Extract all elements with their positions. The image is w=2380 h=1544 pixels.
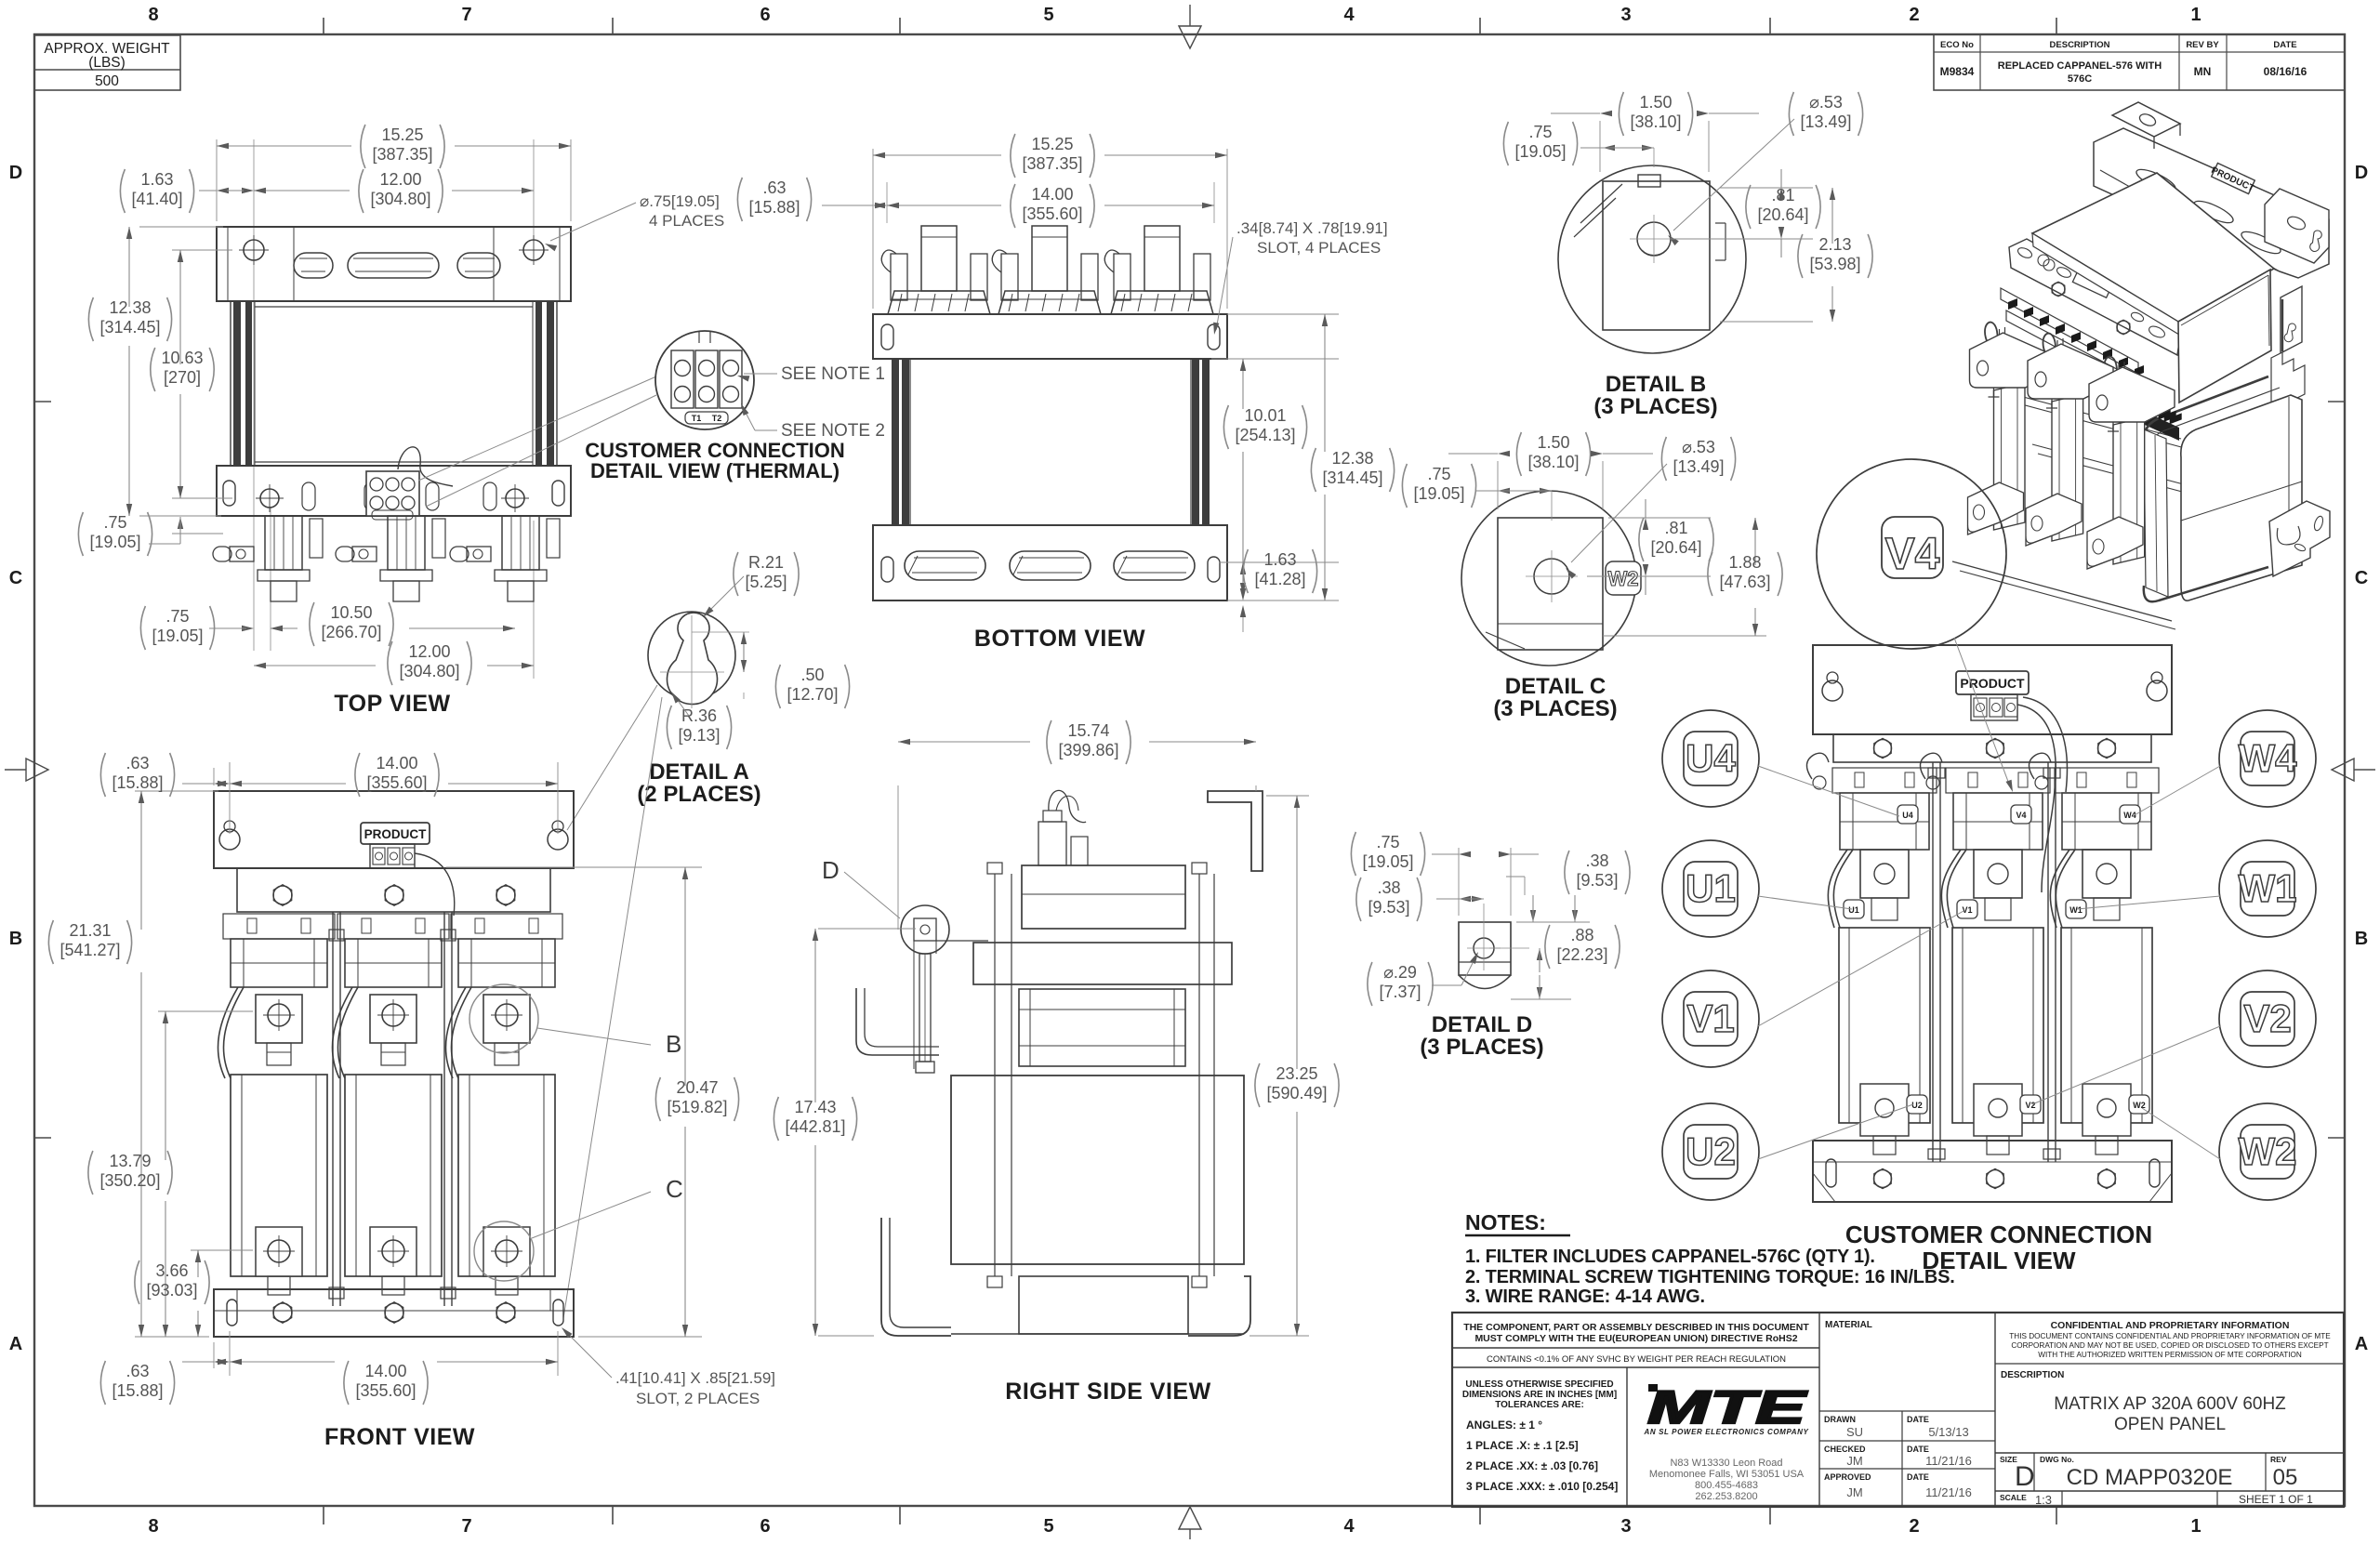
svg-text:V4: V4 xyxy=(1885,530,1940,579)
svg-text:DATE: DATE xyxy=(1907,1415,1929,1424)
svg-text:[19.05]: [19.05] xyxy=(89,533,140,551)
svg-text:[355.60]: [355.60] xyxy=(366,773,427,792)
svg-text:JM: JM xyxy=(1846,1485,1862,1499)
svg-text:[9.53]: [9.53] xyxy=(1576,871,1618,890)
svg-text:14.00: 14.00 xyxy=(376,754,417,772)
svg-text:7: 7 xyxy=(461,5,471,25)
svg-text:5: 5 xyxy=(1043,5,1053,25)
svg-text:[590.49]: [590.49] xyxy=(1266,1084,1327,1102)
svg-text:.81: .81 xyxy=(1771,186,1794,205)
svg-text:REPLACED CAPPANEL-576 WITH: REPLACED CAPPANEL-576 WITH xyxy=(1998,60,2162,72)
svg-text:.75: .75 xyxy=(1376,833,1399,851)
svg-text:V2: V2 xyxy=(2243,996,2291,1040)
svg-text:7: 7 xyxy=(461,1516,471,1537)
svg-text:D: D xyxy=(2015,1461,2035,1492)
svg-text:500: 500 xyxy=(95,73,119,89)
svg-text:⌀.53: ⌀.53 xyxy=(1809,93,1843,112)
svg-text:2 PLACE .XX: ± .03 [0.76]: 2 PLACE .XX: ± .03 [0.76] xyxy=(1466,1459,1598,1472)
svg-text:[387.35]: [387.35] xyxy=(372,145,432,164)
svg-text:8: 8 xyxy=(148,1516,158,1537)
svg-text:05: 05 xyxy=(2273,1465,2298,1490)
svg-text:[314.45]: [314.45] xyxy=(1322,468,1382,487)
svg-text:DESCRIPTION: DESCRIPTION xyxy=(2001,1370,2064,1380)
svg-text:SEE NOTE 2: SEE NOTE 2 xyxy=(781,421,885,441)
svg-text:W2: W2 xyxy=(1608,567,1639,590)
svg-text:⌀.53: ⌀.53 xyxy=(1682,438,1715,456)
svg-text:A: A xyxy=(9,1334,22,1354)
svg-text:CONTAINS <0.1% OF ANY SVHC BY: CONTAINS <0.1% OF ANY SVHC BY WEIGHT PER… xyxy=(1487,1354,1786,1365)
svg-text:D: D xyxy=(2355,163,2368,183)
svg-text:DESCRIPTION: DESCRIPTION xyxy=(2050,40,2110,50)
svg-text:5/13/13: 5/13/13 xyxy=(1928,1425,1968,1439)
svg-text:[15.88]: [15.88] xyxy=(112,1381,163,1400)
svg-text:[355.60]: [355.60] xyxy=(355,1381,416,1400)
svg-text:6: 6 xyxy=(760,5,770,25)
svg-text:V2: V2 xyxy=(2025,1101,2035,1110)
svg-text:T2: T2 xyxy=(712,414,722,423)
svg-text:W2: W2 xyxy=(2133,1101,2146,1110)
svg-text:REV: REV xyxy=(2270,1455,2287,1464)
svg-text:DETAIL D: DETAIL D xyxy=(1432,1012,1532,1037)
svg-text:11/21/16: 11/21/16 xyxy=(1925,1454,1972,1468)
svg-text:BOTTOM VIEW: BOTTOM VIEW xyxy=(974,626,1145,652)
svg-text:CHECKED: CHECKED xyxy=(1824,1445,1866,1454)
svg-text:U4: U4 xyxy=(1686,736,1736,780)
svg-text:[399.86]: [399.86] xyxy=(1058,741,1118,759)
svg-text:T1: T1 xyxy=(692,414,702,423)
svg-text:11/21/16: 11/21/16 xyxy=(1925,1485,1972,1499)
svg-text:⌀.75[19.05]: ⌀.75[19.05] xyxy=(640,192,720,210)
svg-text:D: D xyxy=(9,163,22,183)
svg-text:M9834: M9834 xyxy=(1940,65,1975,78)
svg-text:[22.23]: [22.23] xyxy=(1556,945,1607,964)
svg-text:.63: .63 xyxy=(126,1362,149,1380)
svg-text:V4: V4 xyxy=(2016,811,2026,820)
svg-text:CD MAPP0320E: CD MAPP0320E xyxy=(2067,1465,2233,1490)
svg-text:12.38: 12.38 xyxy=(109,298,151,317)
svg-text:N83 W13330 Leon Road: N83 W13330 Leon Road xyxy=(1670,1458,1782,1469)
svg-text:DETAIL C: DETAIL C xyxy=(1505,674,1606,699)
svg-text:15.74: 15.74 xyxy=(1067,721,1109,740)
svg-text:MUST COMPLY WITH THE EU(EUROPE: MUST COMPLY WITH THE EU(EUROPEAN UNION) … xyxy=(1474,1333,1797,1344)
svg-text:[38.10]: [38.10] xyxy=(1527,453,1579,471)
svg-text:V1: V1 xyxy=(1962,905,1972,915)
svg-text:[7.37]: [7.37] xyxy=(1379,983,1421,1001)
svg-text:MN: MN xyxy=(2194,65,2212,78)
svg-text:JM: JM xyxy=(1846,1454,1862,1468)
svg-text:15.25: 15.25 xyxy=(1031,135,1073,153)
svg-text:DATE: DATE xyxy=(1907,1445,1929,1454)
svg-text:23.25: 23.25 xyxy=(1276,1064,1317,1083)
svg-text:[15.88]: [15.88] xyxy=(748,198,800,217)
svg-text:[350.20]: [350.20] xyxy=(99,1171,160,1190)
svg-text:ECO No: ECO No xyxy=(1940,40,1974,50)
svg-text:1:3: 1:3 xyxy=(2035,1493,2052,1507)
svg-text:[15.88]: [15.88] xyxy=(112,773,163,792)
svg-text:800.455-4683: 800.455-4683 xyxy=(1695,1480,1758,1491)
svg-text:U2: U2 xyxy=(1911,1101,1923,1110)
svg-text:V1: V1 xyxy=(1686,996,1734,1040)
svg-text:C: C xyxy=(2355,568,2368,588)
svg-text:[270]: [270] xyxy=(164,368,201,387)
svg-text:C: C xyxy=(666,1175,683,1203)
svg-text:[41.40]: [41.40] xyxy=(131,190,182,208)
svg-text:NOTES:: NOTES: xyxy=(1465,1210,1546,1234)
svg-text:1 PLACE .X: ± .1 [2.5]: 1 PLACE .X: ± .1 [2.5] xyxy=(1466,1439,1579,1452)
svg-text:.81: .81 xyxy=(1664,519,1687,537)
svg-text:⌀.29: ⌀.29 xyxy=(1383,963,1417,982)
svg-text:(2 PLACES): (2 PLACES) xyxy=(637,782,760,807)
svg-text:MTE: MTE xyxy=(1647,1381,1808,1433)
svg-text:D: D xyxy=(822,856,840,884)
svg-text:DETAIL VIEW (THERMAL): DETAIL VIEW (THERMAL) xyxy=(590,459,840,482)
svg-text:.41[10.41] X .85[21.59]: .41[10.41] X .85[21.59] xyxy=(615,1369,775,1387)
svg-text:[13.49]: [13.49] xyxy=(1800,112,1851,131)
svg-text:SLOT, 2 PLACES: SLOT, 2 PLACES xyxy=(636,1390,760,1407)
svg-text:3. WIRE RANGE: 4-14 AWG.: 3. WIRE RANGE: 4-14 AWG. xyxy=(1465,1287,1705,1307)
svg-text:(LBS): (LBS) xyxy=(88,55,126,71)
svg-text:DWG No.: DWG No. xyxy=(2040,1455,2074,1464)
svg-text:[19.05]: [19.05] xyxy=(1413,484,1464,503)
svg-text:THE COMPONENT, PART OR ASSEMBL: THE COMPONENT, PART OR ASSEMBLY DESCRIBE… xyxy=(1463,1322,1809,1333)
svg-text:10.50: 10.50 xyxy=(330,603,372,622)
svg-text:[41.28]: [41.28] xyxy=(1254,570,1305,588)
svg-text:6: 6 xyxy=(760,1516,770,1537)
svg-text:SEE NOTE 1: SEE NOTE 1 xyxy=(781,364,885,384)
svg-text:B: B xyxy=(9,929,22,949)
svg-text:[19.05]: [19.05] xyxy=(1514,142,1566,161)
svg-text:[519.82]: [519.82] xyxy=(667,1098,727,1116)
svg-text:1.88: 1.88 xyxy=(1728,553,1761,572)
svg-text:W1: W1 xyxy=(2239,866,2297,910)
svg-text:[20.64]: [20.64] xyxy=(1757,205,1808,224)
svg-text:[93.03]: [93.03] xyxy=(146,1281,197,1300)
svg-text:W1: W1 xyxy=(2069,905,2082,915)
svg-text:.63: .63 xyxy=(762,178,786,197)
svg-text:.34[8.74] X .78[19.91]: .34[8.74] X .78[19.91] xyxy=(1236,219,1388,237)
svg-text:5: 5 xyxy=(1043,1516,1053,1537)
svg-text:12.38: 12.38 xyxy=(1331,449,1373,468)
svg-text:PRODUCT: PRODUCT xyxy=(1960,676,2025,691)
svg-text:1: 1 xyxy=(2190,5,2201,25)
svg-text:SHEET 1 OF 1: SHEET 1 OF 1 xyxy=(2239,1493,2313,1506)
svg-text:[5.25]: [5.25] xyxy=(745,573,787,591)
svg-text:[266.70]: [266.70] xyxy=(321,623,381,641)
svg-text:.38: .38 xyxy=(1377,878,1400,897)
svg-text:[304.80]: [304.80] xyxy=(399,662,459,680)
svg-text:.88: .88 xyxy=(1570,926,1593,944)
svg-text:[47.63]: [47.63] xyxy=(1719,573,1770,591)
svg-text:DRAWN: DRAWN xyxy=(1824,1415,1856,1424)
svg-text:3: 3 xyxy=(1620,1516,1631,1537)
svg-text:12.00: 12.00 xyxy=(379,170,421,189)
svg-text:10.01: 10.01 xyxy=(1244,406,1286,425)
svg-text:21.31: 21.31 xyxy=(69,921,111,940)
svg-text:SLOT, 4 PLACES: SLOT, 4 PLACES xyxy=(1257,239,1381,257)
svg-text:2. TERMINAL SCREW TIGHTENING: 2. TERMINAL SCREW TIGHTENING TORQUE: 16 … xyxy=(1465,1267,1955,1287)
svg-text:3 PLACE .XXX: ± .010 [0.254]: 3 PLACE .XXX: ± .010 [0.254] xyxy=(1466,1480,1618,1493)
svg-text:14.00: 14.00 xyxy=(364,1362,406,1380)
svg-text:W4: W4 xyxy=(2239,736,2298,780)
svg-text:[9.53]: [9.53] xyxy=(1368,898,1409,917)
svg-text:17.43: 17.43 xyxy=(794,1098,836,1116)
svg-text:2: 2 xyxy=(1909,1516,1919,1537)
svg-text:CUSTOMER CONNECTION: CUSTOMER CONNECTION xyxy=(1845,1221,2152,1248)
svg-text:.75: .75 xyxy=(1427,465,1450,483)
svg-text:B: B xyxy=(666,1030,681,1058)
svg-text:1. FILTER INCLUDES CAPPANEL-5: 1. FILTER INCLUDES CAPPANEL-576C (QTY 1)… xyxy=(1465,1247,1875,1267)
svg-text:12.00: 12.00 xyxy=(408,642,450,661)
svg-text:DIMENSIONS ARE IN INCHES [MM]: DIMENSIONS ARE IN INCHES [MM] xyxy=(1462,1390,1617,1400)
svg-text:2.13: 2.13 xyxy=(1818,235,1851,254)
svg-text:[304.80]: [304.80] xyxy=(370,190,430,208)
svg-text:08/16/16: 08/16/16 xyxy=(2264,65,2307,78)
svg-text:3.66: 3.66 xyxy=(155,1261,188,1280)
svg-text:14.00: 14.00 xyxy=(1031,185,1073,204)
svg-text:R.36: R.36 xyxy=(681,706,717,725)
svg-text:[442.81]: [442.81] xyxy=(785,1117,845,1136)
svg-text:[355.60]: [355.60] xyxy=(1022,205,1082,223)
svg-text:[387.35]: [387.35] xyxy=(1022,154,1082,173)
svg-text:1.50: 1.50 xyxy=(1639,93,1672,112)
svg-text:3: 3 xyxy=(1620,5,1631,25)
svg-text:A: A xyxy=(2355,1334,2368,1354)
svg-text:[19.05]: [19.05] xyxy=(1362,852,1413,871)
svg-text:OPEN PANEL: OPEN PANEL xyxy=(2114,1415,2226,1434)
svg-text:SU: SU xyxy=(1846,1425,1863,1439)
svg-text:[38.10]: [38.10] xyxy=(1630,112,1681,131)
svg-text:SCALE: SCALE xyxy=(2000,1493,2027,1502)
svg-text:(3 PLACES): (3 PLACES) xyxy=(1593,394,1717,419)
svg-text:W2: W2 xyxy=(2239,1129,2297,1173)
svg-text:DETAIL A: DETAIL A xyxy=(649,759,749,785)
svg-text:PRODUCT: PRODUCT xyxy=(364,827,428,841)
svg-text:AN SL POWER ELECTRONICS COMPAN: AN SL POWER ELECTRONICS COMPANY xyxy=(1644,1428,1809,1436)
svg-text:APPROVED: APPROVED xyxy=(1824,1472,1871,1482)
svg-text:C: C xyxy=(9,568,22,588)
svg-text:.50: .50 xyxy=(800,666,824,684)
svg-text:U2: U2 xyxy=(1686,1129,1736,1173)
svg-text:[19.05]: [19.05] xyxy=(152,627,203,645)
svg-text:20.47: 20.47 xyxy=(676,1078,718,1097)
svg-text:MATRIX AP 320A 600V 60HZ: MATRIX AP 320A 600V 60HZ xyxy=(2054,1394,2286,1414)
svg-text:CONFIDENTIAL AND PROPRIETARY I: CONFIDENTIAL AND PROPRIETARY INFORMATION xyxy=(2051,1320,2290,1331)
svg-text:DATE: DATE xyxy=(2273,40,2296,50)
svg-text:REV BY: REV BY xyxy=(2186,40,2219,50)
svg-text:13.79: 13.79 xyxy=(109,1152,151,1170)
svg-text:UNLESS OTHERWISE SPECIFIED: UNLESS OTHERWISE SPECIFIED xyxy=(1465,1379,1613,1390)
svg-text:4: 4 xyxy=(1343,1516,1355,1537)
svg-text:WITH THE AUTHORIZED WRITTEN PE: WITH THE AUTHORIZED WRITTEN PERMISSION O… xyxy=(2038,1351,2302,1359)
svg-text:(3 PLACES): (3 PLACES) xyxy=(1493,696,1617,721)
svg-text:15.25: 15.25 xyxy=(381,125,423,144)
svg-text:10.63: 10.63 xyxy=(161,349,203,367)
svg-text:DATE: DATE xyxy=(1907,1472,1929,1482)
svg-text:.75: .75 xyxy=(1528,123,1552,141)
svg-text:4: 4 xyxy=(1343,5,1355,25)
svg-text:U1: U1 xyxy=(1686,866,1736,910)
svg-text:[20.64]: [20.64] xyxy=(1650,538,1701,557)
svg-text:2: 2 xyxy=(1909,5,1919,25)
svg-text:[12.70]: [12.70] xyxy=(787,685,838,704)
svg-text:FRONT VIEW: FRONT VIEW xyxy=(324,1424,475,1450)
svg-text:.75: .75 xyxy=(165,607,189,626)
svg-text:1.63: 1.63 xyxy=(1263,550,1296,569)
svg-text:TOLERANCES ARE:: TOLERANCES ARE: xyxy=(1495,1400,1584,1410)
svg-text:[13.49]: [13.49] xyxy=(1673,457,1724,476)
svg-text:[254.13]: [254.13] xyxy=(1235,426,1295,444)
svg-text:CORPORATION AND MAY NOT BE USE: CORPORATION AND MAY NOT BE USED, COPIED … xyxy=(2011,1341,2328,1350)
svg-text:.75: .75 xyxy=(103,513,126,532)
svg-text:1: 1 xyxy=(2190,1516,2201,1537)
svg-text:8: 8 xyxy=(148,5,158,25)
svg-text:[541.27]: [541.27] xyxy=(59,941,120,959)
svg-text:Menomonee Falls, WI 53051 USA: Menomonee Falls, WI 53051 USA xyxy=(1649,1469,1805,1480)
svg-text:RIGHT SIDE VIEW: RIGHT SIDE VIEW xyxy=(1005,1379,1210,1405)
svg-text:U4: U4 xyxy=(1902,811,1913,820)
svg-text:U1: U1 xyxy=(1848,905,1859,915)
svg-text:DETAIL B: DETAIL B xyxy=(1606,372,1706,397)
svg-text:MATERIAL: MATERIAL xyxy=(1825,1320,1872,1330)
svg-text:TOP VIEW: TOP VIEW xyxy=(334,691,450,717)
svg-text:ANGLES: ± 1 °: ANGLES: ± 1 ° xyxy=(1466,1419,1542,1432)
svg-text:THIS DOCUMENT CONTAINS CONFIDE: THIS DOCUMENT CONTAINS CONFIDENTIAL AND … xyxy=(2009,1332,2331,1340)
svg-text:B: B xyxy=(2355,929,2368,949)
svg-text:4 PLACES: 4 PLACES xyxy=(649,212,724,230)
svg-text:R.21: R.21 xyxy=(748,553,784,572)
svg-text:1.50: 1.50 xyxy=(1537,433,1569,452)
svg-text:(3 PLACES): (3 PLACES) xyxy=(1420,1035,1543,1060)
svg-text:.38: .38 xyxy=(1585,851,1608,870)
svg-text:.63: .63 xyxy=(126,754,149,772)
svg-text:[314.45]: [314.45] xyxy=(99,318,160,337)
svg-text:[53.98]: [53.98] xyxy=(1809,255,1860,273)
svg-text:262.253.8200: 262.253.8200 xyxy=(1695,1491,1757,1502)
svg-text:576C: 576C xyxy=(2068,73,2092,85)
svg-text:1.63: 1.63 xyxy=(140,170,173,189)
svg-text:[9.13]: [9.13] xyxy=(678,726,720,745)
